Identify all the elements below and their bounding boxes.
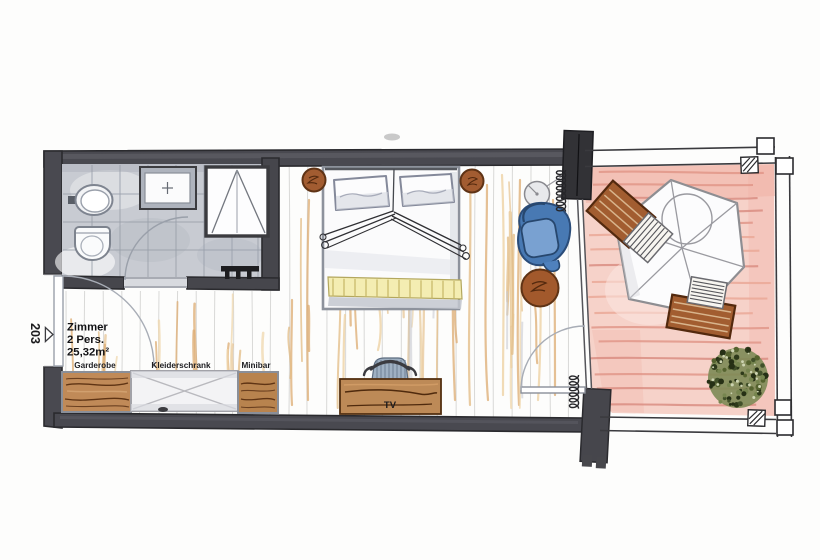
svg-text:Zimmer: Zimmer xyxy=(67,322,108,334)
svg-text:Kleiderschrank: Kleiderschrank xyxy=(151,361,211,370)
svg-text:Garderobe: Garderobe xyxy=(74,361,116,370)
svg-text:2 Pers.: 2 Pers. xyxy=(67,334,104,346)
svg-text:25,32m²: 25,32m² xyxy=(67,347,109,359)
svg-text:TV: TV xyxy=(384,400,397,411)
svg-text:203: 203 xyxy=(28,323,42,344)
svg-text:Minibar: Minibar xyxy=(241,361,271,370)
